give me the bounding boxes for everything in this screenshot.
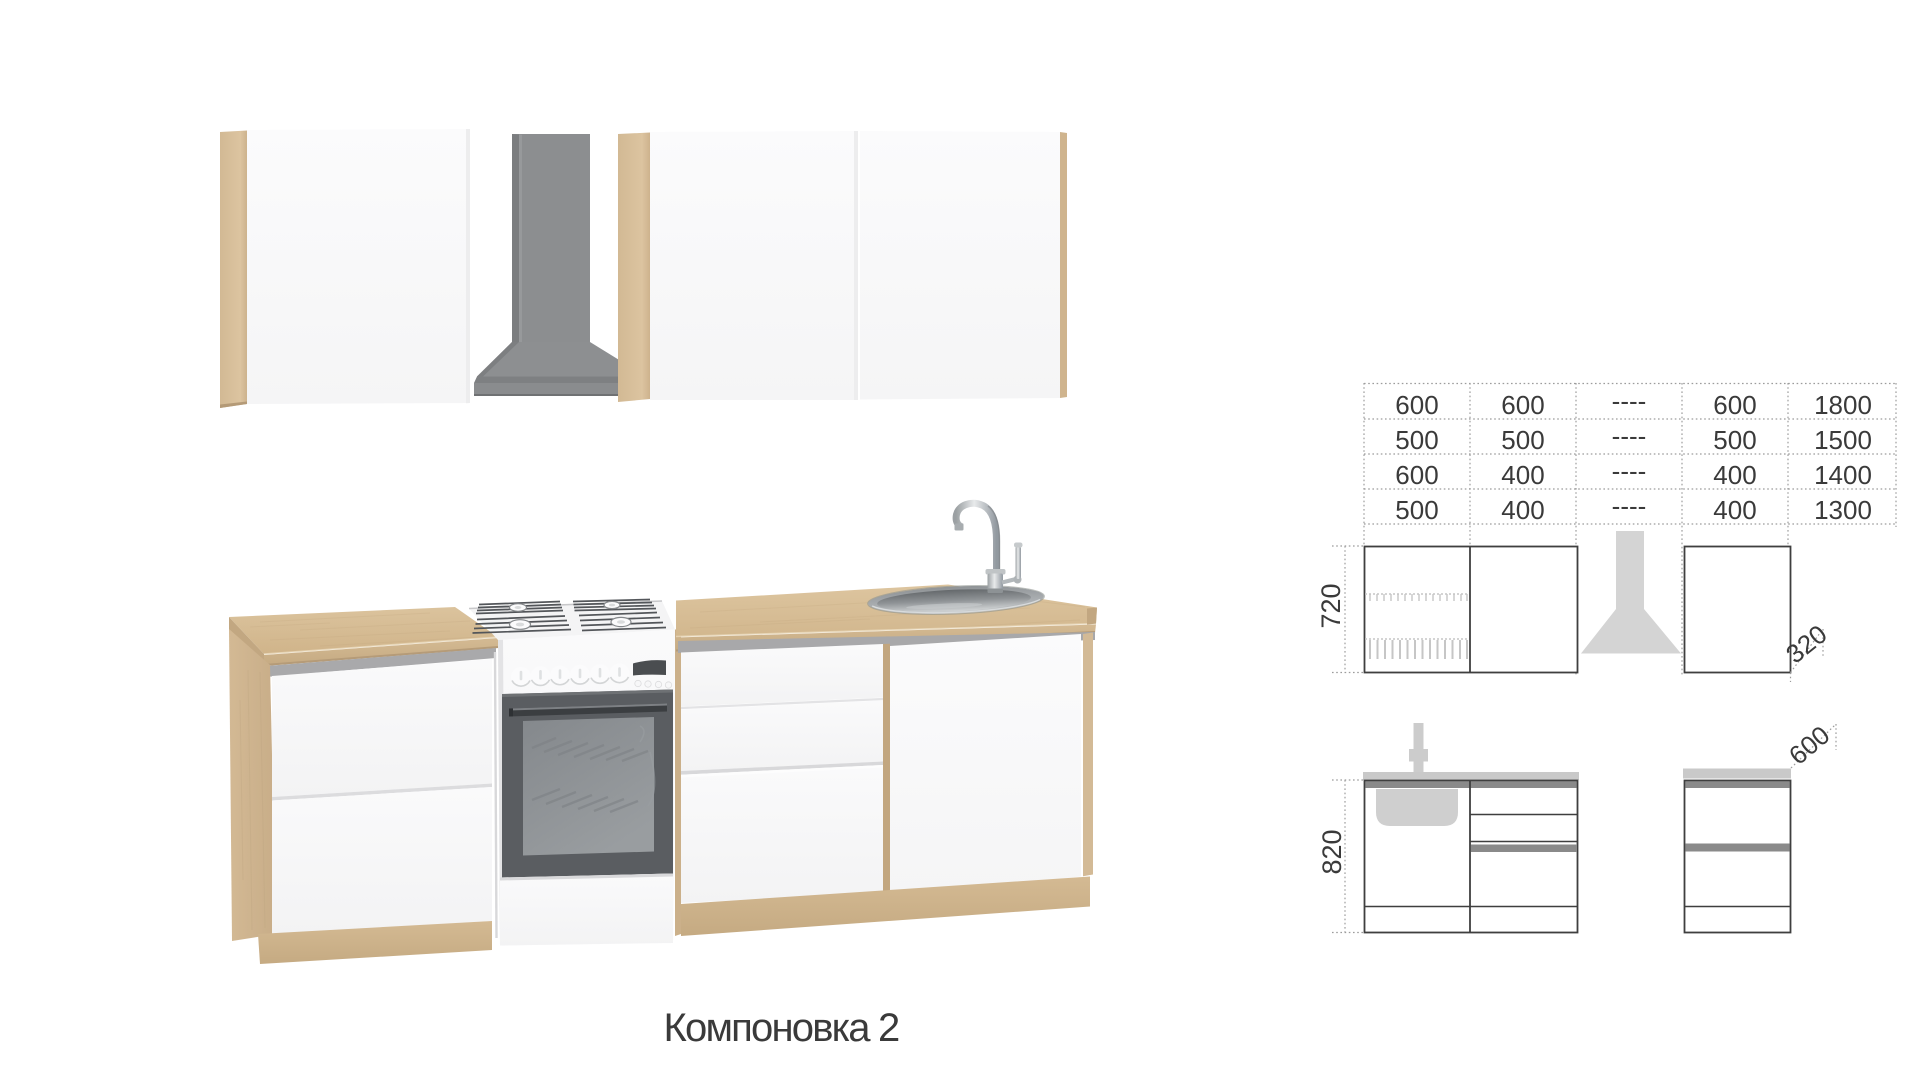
svg-text:----: ---- xyxy=(1612,386,1647,416)
svg-text:500: 500 xyxy=(1395,425,1438,455)
svg-text:1500: 1500 xyxy=(1814,425,1872,455)
svg-text:600: 600 xyxy=(1713,390,1756,420)
svg-text:----: ---- xyxy=(1612,491,1647,521)
svg-text:1300: 1300 xyxy=(1814,495,1872,525)
svg-text:400: 400 xyxy=(1501,495,1544,525)
svg-text:500: 500 xyxy=(1395,495,1438,525)
svg-text:----: ---- xyxy=(1612,421,1647,451)
svg-text:400: 400 xyxy=(1713,460,1756,490)
svg-text:500: 500 xyxy=(1713,425,1756,455)
svg-text:600: 600 xyxy=(1395,460,1438,490)
svg-text:----: ---- xyxy=(1612,456,1647,486)
svg-text:1400: 1400 xyxy=(1814,460,1872,490)
svg-text:600: 600 xyxy=(1395,390,1438,420)
svg-text:600: 600 xyxy=(1501,390,1544,420)
svg-text:Компоновка 2: Компоновка 2 xyxy=(664,1006,899,1050)
svg-text:1800: 1800 xyxy=(1814,390,1872,420)
svg-text:820: 820 xyxy=(1317,829,1347,874)
svg-text:500: 500 xyxy=(1501,425,1544,455)
svg-text:400: 400 xyxy=(1713,495,1756,525)
svg-text:400: 400 xyxy=(1501,460,1544,490)
svg-text:720: 720 xyxy=(1316,583,1346,628)
